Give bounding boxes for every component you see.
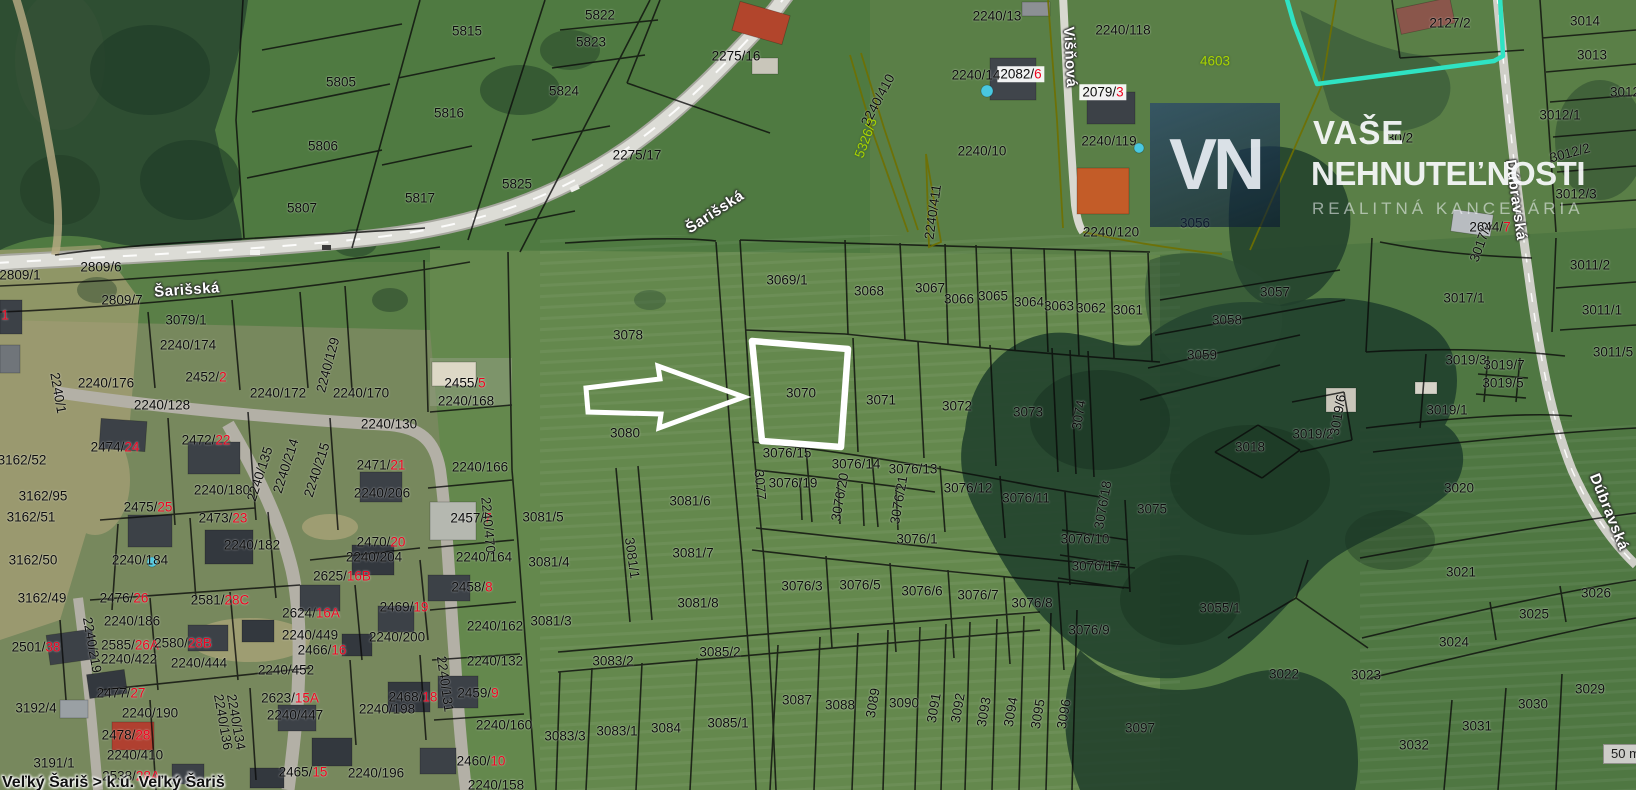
- parcel-label-2275-17: 2275/17: [613, 148, 662, 162]
- street-label-dubravska: Dúbravská: [1587, 472, 1631, 553]
- parcel-label-3076-7: 3076/7: [957, 588, 998, 602]
- parcel-label-2240-190: 2240/190: [122, 706, 178, 720]
- parcel-label-3076-10: 3076/10: [1061, 532, 1110, 546]
- parcel-label-2240-119: 2240/119: [1081, 134, 1136, 148]
- parcel-label-3083-2: 3083/2: [592, 654, 633, 668]
- parcel-label-2585-26A: 2585/26A: [101, 638, 159, 652]
- parcel-label-3076-18: 3076/18: [1092, 480, 1114, 530]
- parcel-label-2240-410: 2240/410: [107, 748, 163, 762]
- parcel-label-5815: 5815: [452, 24, 482, 38]
- parcel-label-3081-8: 3081/8: [677, 596, 718, 610]
- parcel-label-2240-444: 2240/444: [171, 656, 227, 670]
- parcel-label-2471-21: 2471/21: [357, 458, 406, 472]
- parcel-label-2240-130: 2240/130: [361, 417, 417, 431]
- parcel-label-3012: 3012: [1610, 85, 1636, 99]
- parcel-label-3029: 3029: [1575, 682, 1605, 696]
- street-label-visnova: Višňová: [1061, 26, 1079, 87]
- parcel-label-3081-4: 3081/4: [528, 555, 569, 569]
- parcel-label-3059: 3059: [1187, 348, 1217, 362]
- parcel-label-2240-14: 2240/14: [952, 68, 1001, 82]
- parcel-label-2240-204: 2240/204: [346, 550, 402, 564]
- parcel-label-5807: 5807: [287, 201, 317, 215]
- parcel-label-3069-1: 3069/1: [766, 273, 807, 287]
- parcel-label-3081-7: 3081/7: [672, 546, 713, 560]
- parcel-label-3019-6: 3019/6: [1328, 393, 1348, 436]
- parcel-label-3162-50: 3162/50: [9, 553, 58, 567]
- parcel-label-3061: 3061: [1113, 303, 1143, 317]
- parcel-label-3080: 3080: [610, 426, 640, 440]
- parcel-label-2240-160: 2240/160: [476, 718, 532, 732]
- parcel-label-3083-3: 3083/3: [544, 729, 585, 743]
- parcel-label-2240-1: 2240/1: [48, 371, 68, 414]
- parcel-label-2475-25: 2475/25: [124, 500, 173, 514]
- parcel-label-2469-19: 2469/19: [380, 600, 429, 614]
- parcel-label-3065: 3065: [978, 289, 1008, 303]
- parcel-label-3097: 3097: [1125, 721, 1155, 735]
- parcel-label-4603: 4603: [1200, 54, 1230, 68]
- parcel-label-2455-5: 2455/5: [444, 376, 485, 390]
- parcel-label-3019-7: 3019/7: [1483, 358, 1524, 372]
- parcel-label-3076-1: 3076/1: [896, 532, 937, 546]
- parcel-label-3076-15: 3076/15: [763, 446, 812, 460]
- street-label-sarisska: Šarišská: [154, 280, 221, 300]
- parcel-label-3019-1: 3019/1: [1426, 403, 1467, 417]
- parcel-label-5822: 5822: [585, 8, 615, 22]
- parcel-labels-layer: 5805580658075815581658175822582358245825…: [0, 0, 1636, 790]
- parcel-label-2240-182: 2240/182: [224, 538, 280, 552]
- parcel-label-3076-12: 3076/12: [944, 481, 993, 495]
- parcel-label-5824: 5824: [549, 84, 579, 98]
- parcel-label-2240-128: 2240/128: [134, 398, 190, 412]
- parcel-label-5326-3: 5326/3: [853, 116, 880, 159]
- parcel-label-30-2: 30/2: [1387, 131, 1413, 145]
- parcel-label-3191-1: 3191/1: [33, 756, 74, 770]
- parcel-label-3024: 3024: [1439, 635, 1469, 649]
- parcel-label-3076-6: 3076/6: [901, 584, 942, 598]
- parcel-label-5823: 5823: [576, 35, 606, 49]
- parcel-label-3076-5: 3076/5: [839, 578, 880, 592]
- parcel-label-3023: 3023: [1351, 668, 1381, 682]
- parcel-label-2240-206: 2240/206: [354, 486, 410, 500]
- parcel-label-2477-27: 2477/27: [97, 686, 146, 700]
- parcel-label-3088: 3088: [825, 698, 855, 712]
- parcel-label-2474-24: 2474/24: [91, 440, 140, 454]
- parcel-label-3085-1: 3085/1: [707, 716, 748, 730]
- parcel-label-2240-184: 2240/184: [112, 553, 168, 567]
- parcel-label-3025: 3025: [1519, 607, 1549, 621]
- parcel-label-2240-447: 2240/447: [267, 708, 323, 722]
- parcel-label-2580-28B: 2580/28B: [154, 636, 212, 650]
- parcel-label-2623-15A: 2623/15A: [261, 691, 319, 705]
- parcel-label-2240-200: 2240/200: [369, 630, 425, 644]
- parcel-label-3081-3: 3081/3: [530, 614, 571, 628]
- parcel-label-3095: 3095: [1029, 698, 1048, 730]
- parcel-label-2240-215: 2240/215: [302, 441, 332, 499]
- parcel-label-2240-132: 2240/132: [467, 654, 523, 668]
- parcel-label-2240-166: 2240/166: [452, 460, 508, 474]
- parcel-label-2240-186: 2240/186: [104, 614, 160, 628]
- street-label-sarisska: Šarišská: [683, 188, 746, 236]
- parcel-label-3076-14: 3076/14: [832, 457, 881, 471]
- parcel-label-2240-470: 2240/470: [479, 496, 497, 553]
- parcel-label-5805: 5805: [326, 75, 356, 89]
- parcel-label-3074: 3074: [1070, 399, 1089, 431]
- parcel-label-3093: 3093: [975, 696, 994, 728]
- parcel-label-2240-162: 2240/162: [467, 619, 523, 633]
- parcel-label-3084: 3084: [651, 721, 681, 735]
- parcel-label-3076-21: 3076/21: [888, 475, 910, 525]
- parcel-label-1: 1: [1, 308, 9, 322]
- parcel-label-2240-449: 2240/449: [282, 628, 338, 642]
- parcel-label-5806: 5806: [308, 139, 338, 153]
- parcel-label-2473-23: 2473/23: [199, 511, 248, 525]
- parcel-label-5825: 5825: [502, 177, 532, 191]
- parcel-label-3096: 3096: [1055, 698, 1074, 730]
- parcel-label-2079-3: 2079/3: [1079, 84, 1126, 100]
- parcel-label-3020: 3020: [1444, 481, 1474, 495]
- parcel-label-3012-3: 3012/3: [1555, 187, 1596, 201]
- parcel-label-2624-16A: 2624/16A: [282, 606, 340, 620]
- parcel-label-3076-9: 3076/9: [1068, 623, 1109, 637]
- parcel-label-3089: 3089: [864, 687, 883, 719]
- parcel-label-2809-1: 2809/1: [0, 268, 41, 282]
- parcel-label-3073: 3073: [1013, 405, 1043, 419]
- parcel-label-3079-1: 3079/1: [165, 313, 206, 327]
- parcel-label-3066: 3066: [944, 292, 974, 306]
- parcel-label-2240-198: 2240/198: [359, 702, 415, 716]
- parcel-label-2458-8: 2458/8: [451, 580, 492, 594]
- parcel-label-2082-6: 2082/6: [997, 66, 1044, 82]
- parcel-label-3067: 3067: [915, 281, 945, 295]
- parcel-label-3068: 3068: [854, 284, 884, 298]
- parcel-label-3192-4: 3192/4: [15, 701, 56, 715]
- parcel-label-3058: 3058: [1212, 313, 1242, 327]
- parcel-label-3077: 3077: [752, 469, 768, 500]
- parcel-label-3021: 3021: [1446, 565, 1476, 579]
- parcel-label-2466-16: 2466/16: [298, 643, 347, 657]
- parcel-label-2275-16: 2275/16: [712, 49, 761, 63]
- parcel-label-3075: 3075: [1137, 502, 1167, 516]
- parcel-label-3014: 3014: [1570, 14, 1600, 28]
- parcel-label-2240-214: 2240/214: [271, 437, 301, 495]
- parcel-label-3070: 3070: [786, 386, 816, 400]
- parcel-label-2460-10: 2460/10: [457, 754, 506, 768]
- parcel-label-2240-120: 2240/120: [1083, 225, 1139, 239]
- parcel-label-2240-135: 2240/135: [245, 445, 275, 503]
- parcel-label-3057: 3057: [1260, 285, 1290, 299]
- parcel-label-2240-174: 2240/174: [160, 338, 216, 352]
- parcel-label-3162-51: 3162/51: [7, 510, 56, 524]
- parcel-label-3078: 3078: [613, 328, 643, 342]
- parcel-label-3063: 3063: [1044, 299, 1074, 313]
- parcel-label-3081-5: 3081/5: [522, 510, 563, 524]
- parcel-label-3019-3: 3019/3: [1445, 353, 1486, 367]
- parcel-label-3092: 3092: [949, 692, 968, 724]
- parcel-label-3012-2: 3012/2: [1548, 141, 1591, 165]
- parcel-label-2809-7: 2809/7: [101, 293, 142, 307]
- parcel-label-3012-1: 3012/1: [1539, 108, 1580, 122]
- parcel-label-3162-52: 3162/52: [0, 453, 46, 467]
- parcel-label-2240-172: 2240/172: [250, 386, 306, 400]
- parcel-label-2240-118: 2240/118: [1095, 23, 1150, 37]
- parcel-label-2465-15: 2465/15: [279, 765, 328, 779]
- parcel-label-3081-6: 3081/6: [669, 494, 710, 508]
- parcel-label-3081-1: 3081/1: [622, 537, 641, 580]
- parcel-label-3019-5: 3019/5: [1482, 376, 1523, 390]
- parcel-label-3056: 3056: [1180, 216, 1210, 230]
- parcel-label-3018: 3018: [1235, 440, 1265, 454]
- parcel-label-3162-49: 3162/49: [18, 591, 67, 605]
- parcel-label-3076-19: 3076/19: [769, 476, 818, 490]
- parcel-label-2240-13: 2240/13: [973, 9, 1022, 23]
- parcel-label-3011-1: 3011/1: [1582, 303, 1622, 317]
- parcel-label-3090: 3090: [889, 696, 919, 710]
- scale-bar: 50 m: [1603, 744, 1636, 764]
- parcel-label-2240-452: 2240/452: [258, 663, 314, 677]
- parcel-label-2452-2: 2452/2: [185, 370, 226, 384]
- parcel-label-2240-176: 2240/176: [78, 376, 134, 390]
- parcel-label-3026: 3026: [1581, 586, 1611, 600]
- parcel-label-3064: 3064: [1014, 295, 1044, 309]
- parcel-label-3076-20: 3076/20: [829, 472, 851, 522]
- parcel-label-2581-28C: 2581/28C: [191, 593, 250, 607]
- parcel-label-3076-17: 3076/17: [1072, 559, 1121, 573]
- parcel-label-3076-11: 3076/11: [1002, 491, 1050, 505]
- parcel-label-2240-168: 2240/168: [438, 394, 494, 408]
- parcel-label-2240-422: 2240/422: [101, 652, 157, 666]
- parcel-label-3071: 3071: [866, 393, 896, 407]
- parcel-label-2240-10: 2240/10: [958, 144, 1007, 158]
- parcel-label-3076-3: 3076/3: [781, 579, 822, 593]
- parcel-label-2240-180: 2240/180: [194, 483, 250, 497]
- parcel-label-2501-38: 2501/38: [12, 640, 61, 654]
- parcel-label-2470-20: 2470/20: [357, 535, 406, 549]
- parcel-label-3072: 3072: [942, 399, 972, 413]
- parcel-label-2625-16B: 2625/16B: [313, 569, 371, 583]
- parcel-label-2240-196: 2240/196: [348, 766, 404, 780]
- parcel-label-2240-158: 2240/158: [468, 778, 524, 790]
- parcel-label-2459-9: 2459/9: [457, 686, 498, 700]
- parcel-label-3162-95: 3162/95: [19, 489, 68, 503]
- parcel-label-5816: 5816: [434, 106, 464, 120]
- parcel-label-2240-170: 2240/170: [333, 386, 389, 400]
- parcel-label-2240-219: 2240/219: [80, 616, 103, 674]
- parcel-label-2472-22: 2472/22: [182, 433, 231, 447]
- parcel-label-3011-5: 3011/5: [1593, 345, 1633, 359]
- parcel-label-2478-28: 2478/28: [102, 728, 151, 742]
- cadastral-map[interactable]: 5805580658075815581658175822582358245825…: [0, 0, 1636, 790]
- parcel-label-2240-164: 2240/164: [456, 550, 512, 564]
- parcel-label-2240-411: 2240/411: [922, 184, 943, 241]
- parcel-label-2809-6: 2809/6: [80, 260, 121, 274]
- parcel-label-3055-1: 3055/1: [1199, 601, 1240, 615]
- parcel-label-3083-1: 3083/1: [596, 724, 637, 738]
- parcel-label-3013: 3013: [1577, 48, 1607, 62]
- parcel-label-2476-26: 2476/26: [100, 591, 149, 605]
- parcel-label-3091: 3091: [925, 692, 944, 724]
- parcel-label-3017-1: 3017/1: [1443, 291, 1484, 305]
- parcel-label-3030: 3030: [1518, 697, 1548, 711]
- parcel-label-3087: 3087: [782, 693, 812, 707]
- status-text: Veľký Šariš > k.ú. Veľký Šariš: [2, 774, 225, 790]
- parcel-label-3022: 3022: [1269, 667, 1299, 681]
- parcel-label-2468-18: 2468/18: [389, 690, 438, 704]
- parcel-label-3076-8: 3076/8: [1011, 596, 1052, 610]
- parcel-label-3062: 3062: [1076, 301, 1106, 315]
- parcel-label-5817: 5817: [405, 191, 435, 205]
- parcel-label-3032: 3032: [1399, 738, 1429, 752]
- parcel-label-3011-2: 3011/2: [1570, 258, 1610, 272]
- parcel-label-3085-2: 3085/2: [699, 645, 740, 659]
- parcel-label-2127-2: 2127/2: [1429, 16, 1470, 30]
- parcel-label-3094: 3094: [1002, 696, 1021, 728]
- parcel-label-3031: 3031: [1462, 719, 1492, 733]
